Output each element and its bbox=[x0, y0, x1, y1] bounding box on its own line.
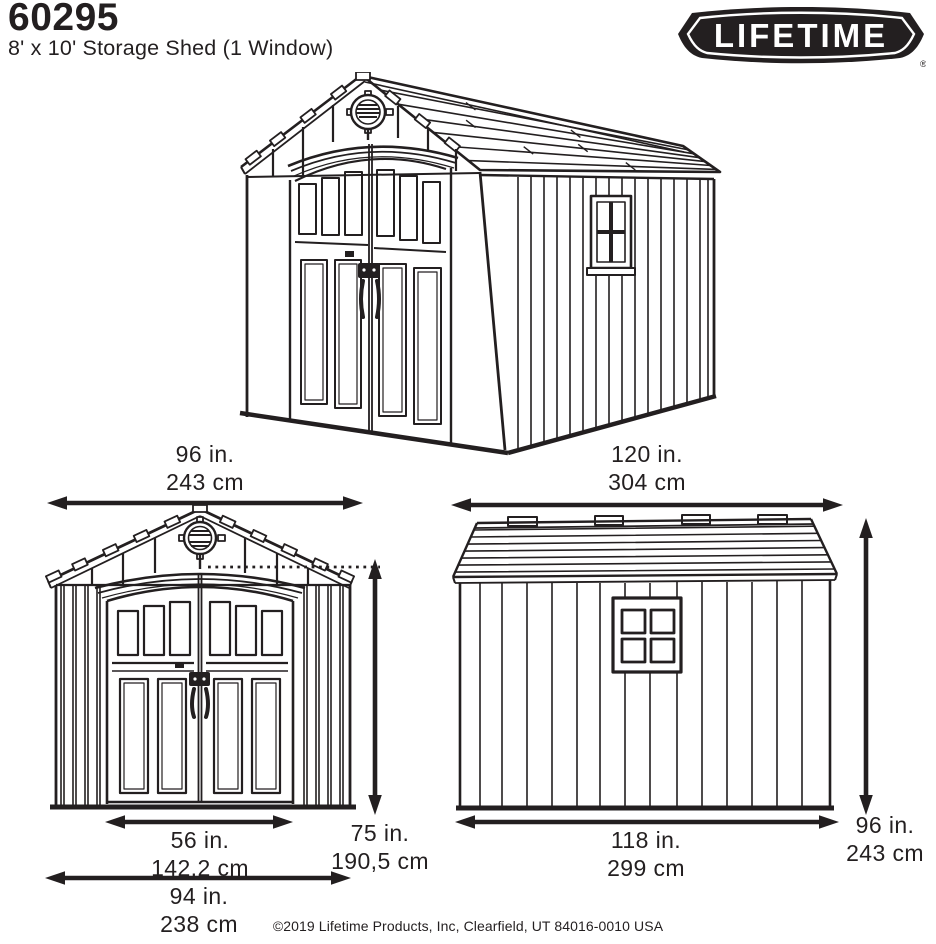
gable-vent bbox=[347, 91, 393, 140]
dim-arrow-overall-height bbox=[856, 517, 876, 816]
brand-text: LIFETIME bbox=[714, 17, 888, 54]
dim-label-front-overall-width: 96 in. 243 cm bbox=[105, 441, 305, 496]
door-handle-front bbox=[175, 662, 210, 717]
dim-value-inches: 56 in. bbox=[100, 827, 300, 855]
dim-value-inches: 118 in. bbox=[546, 827, 746, 855]
front-elevation-drawing bbox=[28, 505, 396, 815]
dim-value-metric: 190,5 cm bbox=[305, 848, 455, 876]
side-window-3d bbox=[587, 196, 635, 275]
dim-value-inches: 120 in. bbox=[547, 441, 747, 469]
roof-3d bbox=[241, 72, 720, 174]
side-roof bbox=[453, 515, 837, 583]
dim-value-metric: 142,2 cm bbox=[100, 855, 300, 883]
lifetime-logo: LIFETIME ® bbox=[676, 5, 926, 69]
registered-mark: ® bbox=[920, 59, 926, 69]
side-window bbox=[613, 598, 681, 672]
front-doors bbox=[95, 574, 305, 804]
dim-value-inches: 75 in. bbox=[305, 820, 455, 848]
dim-label-door-height: 75 in. 190,5 cm bbox=[305, 820, 455, 875]
shed-dimension-sheet: 60295 8' x 10' Storage Shed (1 Window) L… bbox=[0, 0, 936, 944]
dim-arrow-side-overall-length bbox=[450, 497, 844, 513]
dim-label-door-width: 56 in. 142,2 cm bbox=[100, 827, 300, 882]
side-walls bbox=[456, 580, 834, 808]
dim-value-inches: 96 in. bbox=[105, 441, 305, 469]
dim-label-side-overall-length: 120 in. 304 cm bbox=[547, 441, 747, 496]
dim-arrow-front-overall-width bbox=[46, 495, 364, 511]
dim-value-inches: 94 in. bbox=[99, 883, 299, 911]
dim-value-metric: 299 cm bbox=[546, 855, 746, 883]
dim-label-side-base-length: 118 in. 299 cm bbox=[546, 827, 746, 882]
copyright-text: ©2019 Lifetime Products, Inc, Clearfield… bbox=[0, 918, 936, 934]
dim-value-inches: 96 in. bbox=[810, 812, 936, 840]
dim-label-overall-height: 96 in. 243 cm bbox=[810, 812, 936, 867]
dim-value-metric: 304 cm bbox=[547, 469, 747, 497]
front-walls bbox=[50, 585, 356, 807]
model-number: 60295 bbox=[8, 0, 119, 40]
dim-arrow-door-height bbox=[365, 558, 385, 816]
dim-value-metric: 243 cm bbox=[105, 469, 305, 497]
side-wall-3d bbox=[480, 175, 716, 453]
shed-3d-drawing bbox=[228, 72, 733, 467]
product-title: 8' x 10' Storage Shed (1 Window) bbox=[8, 36, 333, 61]
double-doors-3d bbox=[290, 144, 451, 444]
side-elevation-drawing bbox=[443, 513, 845, 813]
dim-value-metric: 243 cm bbox=[810, 840, 936, 868]
